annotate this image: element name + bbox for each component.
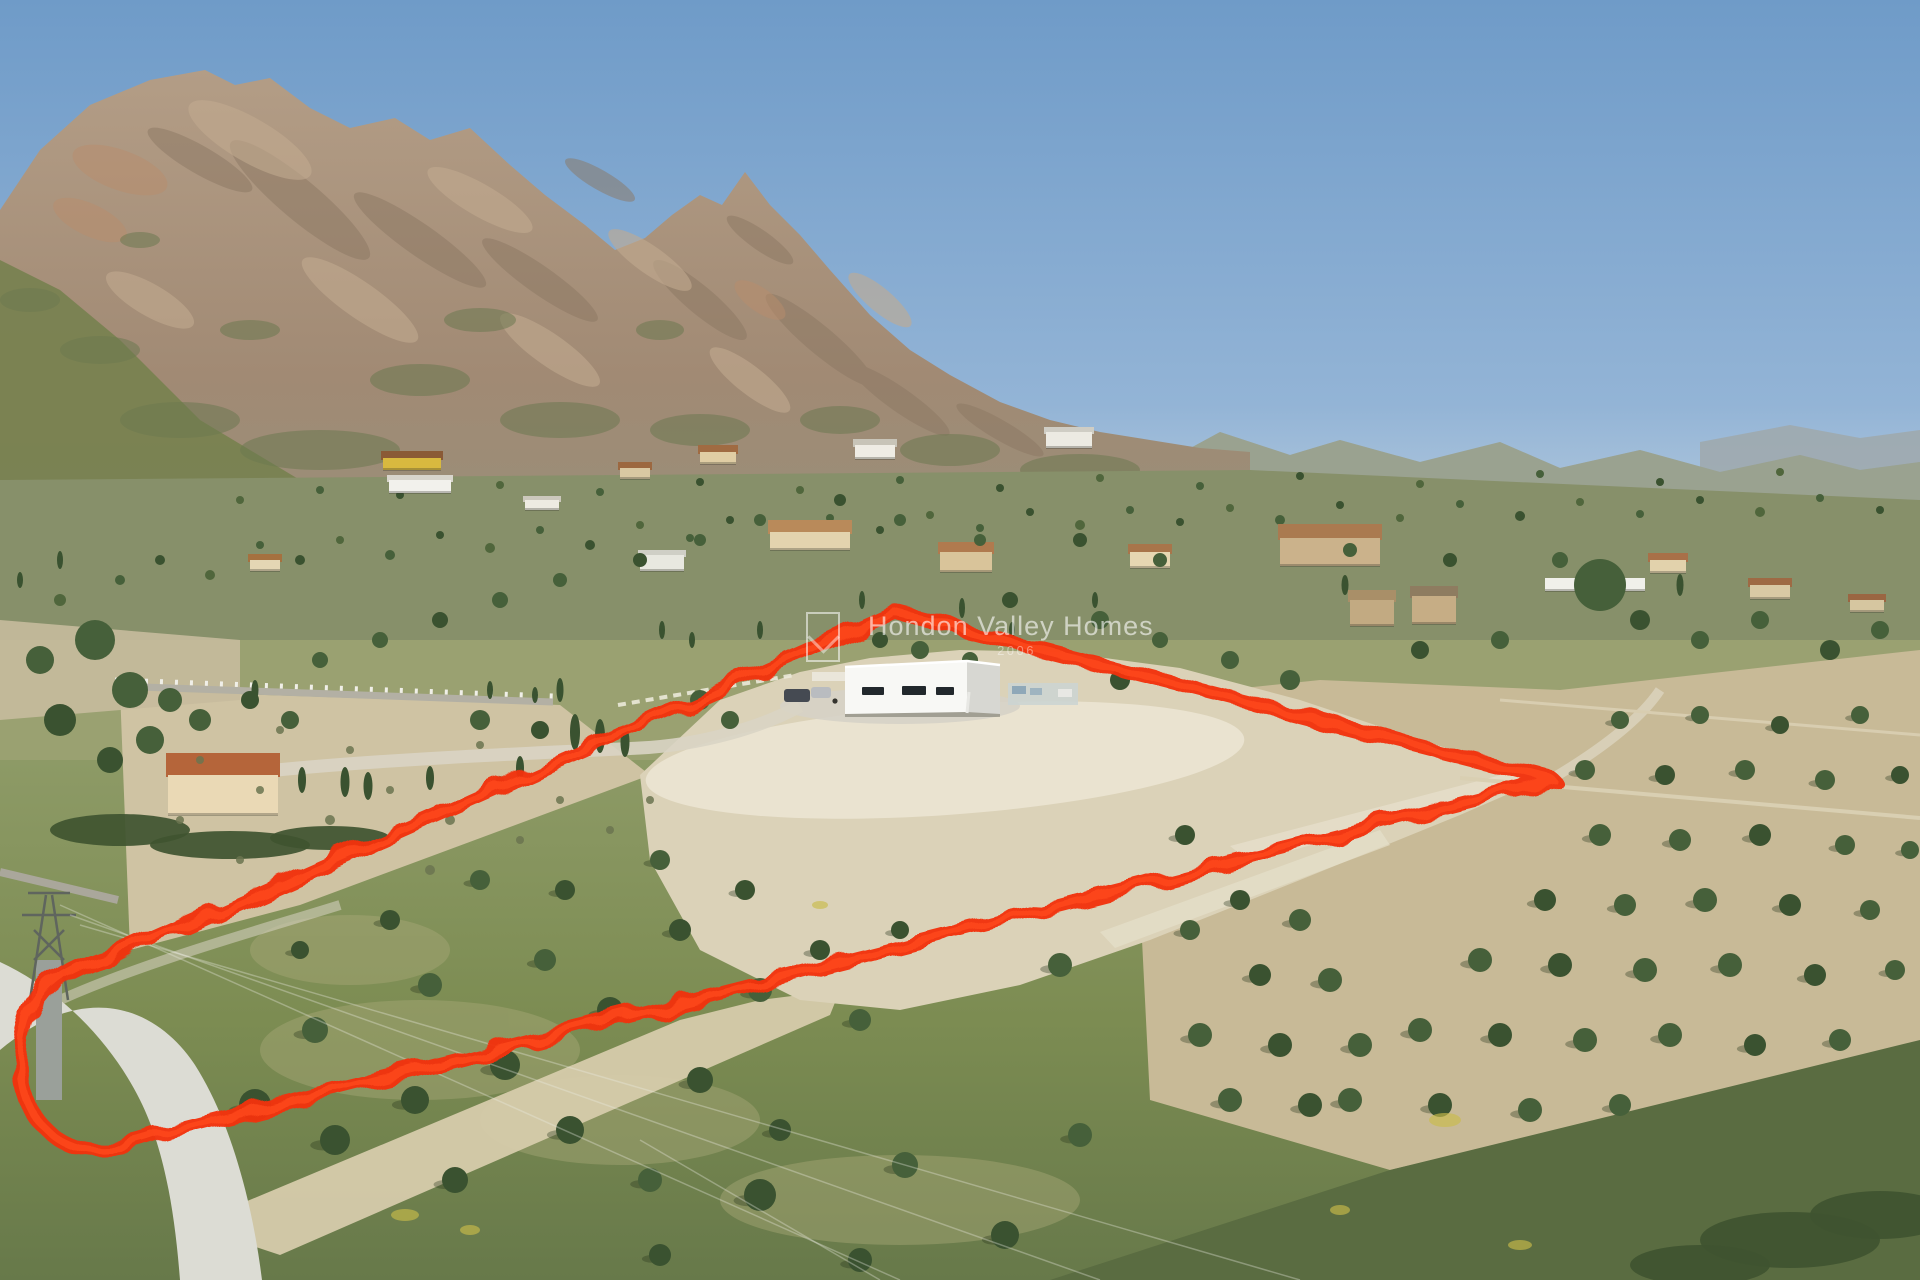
orchard-tree	[1611, 711, 1629, 729]
tree	[470, 710, 490, 730]
shrub	[346, 746, 354, 754]
orchard-tree	[1289, 909, 1311, 931]
field-tree	[735, 880, 755, 900]
orchard-tree	[1860, 900, 1880, 920]
field-tree	[442, 1167, 468, 1193]
distant-tree	[1816, 494, 1824, 502]
orchard-tree	[1633, 958, 1657, 982]
shrub	[325, 815, 335, 825]
orchard-tree	[1348, 1033, 1372, 1057]
field-tree	[534, 949, 556, 971]
distant-tree	[496, 481, 504, 489]
distant-tree	[1176, 518, 1184, 526]
car-dark	[784, 689, 810, 702]
orchard-tree	[1735, 760, 1755, 780]
tree	[694, 534, 706, 546]
house-roof	[768, 520, 852, 534]
tree	[492, 592, 508, 608]
aerial-photo-canvas	[0, 0, 1920, 1280]
tree	[911, 641, 929, 659]
aerial-photo: Hondon Valley Homes 2006	[0, 0, 1920, 1280]
distant-tree	[1776, 468, 1784, 476]
field-tree	[649, 1244, 671, 1266]
distant-tree	[686, 534, 694, 542]
tree	[721, 711, 739, 729]
tree	[1091, 611, 1109, 629]
cypress-tree	[532, 687, 538, 703]
distant-tree	[1096, 474, 1104, 482]
house	[1848, 594, 1886, 613]
tree	[633, 553, 647, 567]
tree	[1751, 611, 1769, 629]
material-pallet	[1030, 688, 1042, 695]
distant-tree	[336, 536, 344, 544]
house-roof	[166, 753, 280, 777]
cypress-tree	[426, 766, 434, 790]
cypress-tree	[298, 767, 306, 793]
house-wall	[1046, 432, 1092, 448]
distant-tree	[636, 521, 644, 529]
house-base-shadow	[1750, 597, 1790, 600]
cypress-tree	[341, 767, 350, 797]
house-base-shadow	[1046, 446, 1092, 449]
tree	[1411, 641, 1429, 659]
distant-tree	[1026, 508, 1034, 516]
field-tree	[556, 1116, 584, 1144]
orchard-tree	[1338, 1088, 1362, 1112]
tree	[112, 672, 148, 708]
house-base-shadow	[1850, 610, 1884, 613]
distant-tree	[1576, 498, 1584, 506]
distant-tree	[926, 511, 934, 519]
cypress-tree	[859, 591, 865, 609]
villa-window	[862, 687, 884, 695]
distant-tree	[596, 488, 604, 496]
distant-tree	[876, 526, 884, 534]
tree	[372, 632, 388, 648]
tree	[1002, 592, 1018, 608]
distant-tree	[236, 496, 244, 504]
orchard-tree	[1218, 1088, 1242, 1112]
distant-tree	[696, 478, 704, 486]
tree	[1443, 553, 1457, 567]
orchard-tree	[1829, 1029, 1851, 1051]
orchard-tree	[1230, 890, 1250, 910]
tree	[1343, 543, 1357, 557]
cypress-tree	[689, 632, 695, 648]
orchard-tree	[1669, 829, 1691, 851]
distant-tree	[54, 594, 66, 606]
house-base-shadow	[525, 508, 559, 511]
distant-tree	[385, 550, 395, 560]
tree	[432, 612, 448, 628]
house-base-shadow	[168, 813, 278, 816]
tree	[97, 747, 123, 773]
cypress-tree	[757, 621, 763, 639]
orchard-tree	[1614, 894, 1636, 916]
cypress-tree	[487, 681, 493, 699]
orchard-tree	[1575, 760, 1595, 780]
orchard-tree	[1188, 1023, 1212, 1047]
tree	[1691, 631, 1709, 649]
field-tree	[401, 1086, 429, 1114]
cypress-tree	[557, 678, 564, 702]
field-tree	[744, 1179, 776, 1211]
house	[1648, 553, 1688, 574]
distant-tree	[585, 540, 595, 550]
distant-tree	[1696, 496, 1704, 504]
distant-tree	[1656, 478, 1664, 486]
distant-tree	[1296, 472, 1304, 480]
house-roof	[1278, 524, 1382, 540]
house-wall	[168, 775, 278, 815]
cypress-tree	[1677, 574, 1684, 596]
orchard-tree	[1468, 948, 1492, 972]
house-wall	[1280, 538, 1380, 566]
house	[768, 520, 852, 551]
orchard-tree	[1749, 824, 1771, 846]
orchard-tree	[1408, 1018, 1432, 1042]
tree	[158, 688, 182, 712]
shrub	[176, 816, 184, 824]
distant-tree	[1275, 515, 1285, 525]
flower-patch	[812, 901, 828, 909]
tree	[872, 632, 888, 648]
cypress-tree	[364, 772, 373, 800]
house	[381, 451, 443, 471]
house	[1410, 586, 1458, 625]
distant-tree	[1196, 482, 1204, 490]
distant-tree	[1336, 501, 1344, 509]
orchard-tree	[1268, 1033, 1292, 1057]
flower-patch	[1330, 1205, 1350, 1215]
material-pallet	[1012, 686, 1026, 694]
shrub	[425, 865, 435, 875]
house	[248, 554, 282, 572]
distant-tree	[976, 524, 984, 532]
house	[1044, 427, 1094, 449]
orchard-tree	[1744, 1034, 1766, 1056]
house-base-shadow	[620, 477, 650, 480]
field-tree	[891, 921, 909, 939]
tree	[1552, 552, 1568, 568]
field-tree	[1048, 953, 1072, 977]
field-tree	[1068, 1123, 1092, 1147]
house	[1748, 578, 1792, 600]
house-base-shadow	[389, 491, 451, 494]
tree	[75, 620, 115, 660]
distant-tree	[1126, 506, 1134, 514]
tree	[834, 494, 846, 506]
house	[698, 445, 738, 465]
distant-tree	[896, 476, 904, 484]
field-tree	[555, 880, 575, 900]
field-tree	[302, 1017, 328, 1043]
distant-tree	[1456, 500, 1464, 508]
distant-tree	[726, 516, 734, 524]
house-wall	[770, 532, 850, 550]
shrub	[386, 786, 394, 794]
orchard-tree	[1851, 706, 1869, 724]
shrub	[196, 756, 204, 764]
tree	[136, 726, 164, 754]
tree	[1630, 610, 1650, 630]
tree	[281, 711, 299, 729]
distant-tree	[1876, 506, 1884, 514]
flower-patch	[1508, 1240, 1532, 1250]
house	[1278, 524, 1382, 567]
orchard-tree	[1891, 766, 1909, 784]
orchard-tree	[1609, 1094, 1631, 1116]
tree	[1153, 553, 1167, 567]
shrub	[516, 836, 524, 844]
tree	[241, 691, 259, 709]
cypress-tree	[1092, 592, 1098, 608]
orchard-tree	[1815, 770, 1835, 790]
house-base-shadow	[383, 468, 441, 471]
distant-tree	[155, 555, 165, 565]
ladder	[967, 692, 969, 713]
orchard-tree	[1691, 706, 1709, 724]
shrub	[556, 796, 564, 804]
orchard-tree	[1548, 953, 1572, 977]
field-tree	[849, 1009, 871, 1031]
field-tree	[418, 973, 442, 997]
tree	[754, 514, 766, 526]
house-wall	[1750, 585, 1790, 599]
distant-tree	[316, 486, 324, 494]
house	[853, 439, 897, 460]
shrub	[646, 796, 654, 804]
tree	[531, 721, 549, 739]
shrub	[476, 741, 484, 749]
house-base-shadow	[1130, 566, 1170, 569]
car-silver	[811, 687, 831, 698]
house	[618, 462, 652, 480]
orchard-tree	[1771, 716, 1789, 734]
field-tree	[1175, 825, 1195, 845]
house-base-shadow	[640, 569, 684, 572]
house-base-shadow	[1650, 571, 1686, 574]
tree	[1221, 651, 1239, 669]
orchard-tree	[1298, 1093, 1322, 1117]
field-tree	[669, 919, 691, 941]
distant-tree	[1075, 520, 1085, 530]
distant-tree	[1396, 514, 1404, 522]
orchard-tree	[1835, 835, 1855, 855]
distant-tree	[1416, 480, 1424, 488]
orchard-tree	[1318, 968, 1342, 992]
orchard-tree	[1589, 824, 1611, 846]
cypress-tree	[57, 551, 63, 569]
villa-window	[936, 687, 954, 695]
cypress-tree	[17, 572, 23, 588]
tree	[894, 514, 906, 526]
shrub	[276, 726, 284, 734]
orchard-tree	[1693, 888, 1717, 912]
cypress-tree	[959, 598, 965, 618]
orchard-tree	[1885, 960, 1905, 980]
tree	[312, 652, 328, 668]
field-tree	[380, 910, 400, 930]
tree	[1152, 632, 1168, 648]
orchard-tree	[1180, 920, 1200, 940]
tree	[1073, 533, 1087, 547]
house-base-shadow	[250, 569, 280, 572]
tree	[1574, 559, 1626, 611]
distant-tree	[996, 484, 1004, 492]
orchard-tree	[1779, 894, 1801, 916]
orchard-tree	[1488, 1023, 1512, 1047]
distant-tree	[1636, 510, 1644, 518]
distant-tree	[1536, 470, 1544, 478]
orchard-tree	[1658, 1023, 1682, 1047]
field-tree	[687, 1067, 713, 1093]
orchard-tree	[1718, 953, 1742, 977]
villa-window	[902, 686, 926, 695]
tree	[1491, 631, 1509, 649]
tree	[553, 573, 567, 587]
distant-tree	[1755, 507, 1765, 517]
flower-patch	[1429, 1113, 1461, 1127]
orchard-tree	[1518, 1098, 1542, 1122]
distant-tree	[295, 555, 305, 565]
house-wall	[640, 555, 684, 571]
house-base-shadow	[700, 462, 736, 465]
house	[166, 753, 280, 816]
villa-side	[967, 661, 1000, 714]
house-wall	[855, 445, 895, 459]
shrub	[256, 786, 264, 794]
person	[832, 698, 837, 703]
house-wall	[1412, 596, 1456, 624]
field-tree	[650, 850, 670, 870]
material-blocks	[1058, 689, 1072, 697]
cypress-tree	[1342, 575, 1349, 595]
house-base-shadow	[1350, 624, 1394, 627]
field-tree	[320, 1125, 350, 1155]
house-base-shadow	[1280, 564, 1380, 567]
tree	[189, 709, 211, 731]
tree	[974, 534, 986, 546]
field-tree	[991, 1221, 1019, 1249]
house	[387, 475, 453, 494]
distant-tree	[256, 541, 264, 549]
house-base-shadow	[940, 570, 992, 573]
house-base-shadow	[1412, 622, 1456, 625]
tree	[1871, 621, 1889, 639]
cypress-tree	[659, 621, 665, 639]
tree	[44, 704, 76, 736]
distant-tree	[796, 486, 804, 494]
orchard-tree	[1804, 964, 1826, 986]
field-tree	[810, 940, 830, 960]
low-white-wall	[812, 672, 845, 681]
house-wall	[940, 552, 992, 572]
distant-tree	[436, 531, 444, 539]
orchard-tree	[1901, 841, 1919, 859]
shrub	[606, 826, 614, 834]
orchard-tree	[1249, 964, 1271, 986]
field-tree	[769, 1119, 791, 1141]
field-tree	[291, 941, 309, 959]
field-tree	[470, 870, 490, 890]
orchard-tree	[1573, 1028, 1597, 1052]
house	[523, 496, 561, 511]
shrub	[236, 856, 244, 864]
distant-tree	[205, 570, 215, 580]
distant-tree	[485, 543, 495, 553]
tree	[1280, 670, 1300, 690]
tree	[26, 646, 54, 674]
distant-tree	[115, 575, 125, 585]
distant-tree	[1226, 504, 1234, 512]
flower-patch	[391, 1209, 419, 1221]
house-base-shadow	[855, 457, 895, 460]
house	[1348, 590, 1396, 627]
tree	[1820, 640, 1840, 660]
orchard-tree	[1655, 765, 1675, 785]
distant-tree	[1515, 511, 1525, 521]
house-base-shadow	[770, 548, 850, 551]
orchard-tree	[1534, 889, 1556, 911]
house-wall	[1350, 600, 1394, 626]
house	[938, 542, 994, 573]
distant-tree	[536, 526, 544, 534]
flower-patch	[460, 1225, 480, 1235]
